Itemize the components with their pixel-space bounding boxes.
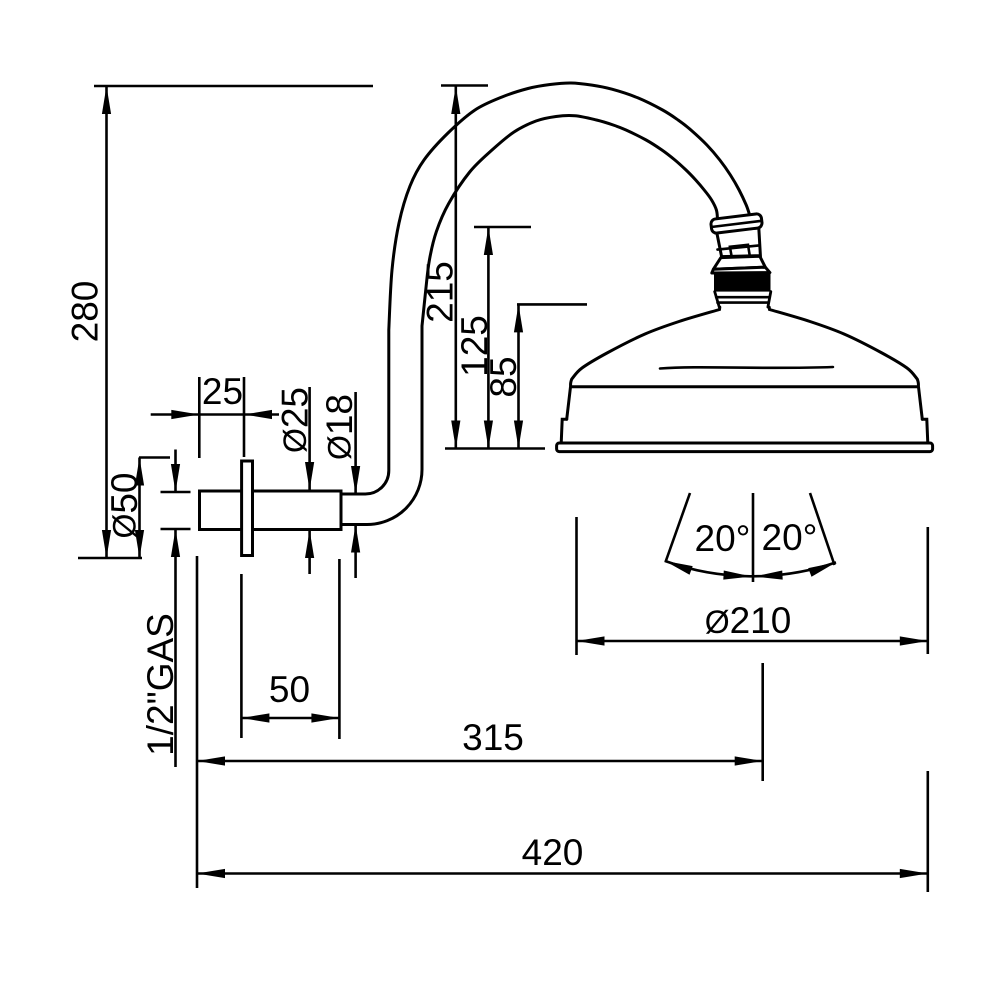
svg-text:50: 50 xyxy=(269,669,310,710)
svg-text:20°: 20° xyxy=(762,517,818,558)
svg-text:20°: 20° xyxy=(695,518,751,559)
svg-text:Ø210: Ø210 xyxy=(705,600,792,641)
svg-text:85: 85 xyxy=(483,356,524,397)
svg-text:280: 280 xyxy=(65,281,106,343)
svg-text:Ø50: Ø50 xyxy=(104,472,145,538)
svg-text:215: 215 xyxy=(420,261,461,323)
svg-text:25: 25 xyxy=(202,371,243,412)
svg-text:315: 315 xyxy=(462,717,524,758)
svg-text:Ø25: Ø25 xyxy=(275,387,316,453)
svg-text:Ø18: Ø18 xyxy=(319,394,360,460)
svg-text:420: 420 xyxy=(522,832,584,873)
svg-text:1/2"GAS: 1/2"GAS xyxy=(140,613,181,756)
